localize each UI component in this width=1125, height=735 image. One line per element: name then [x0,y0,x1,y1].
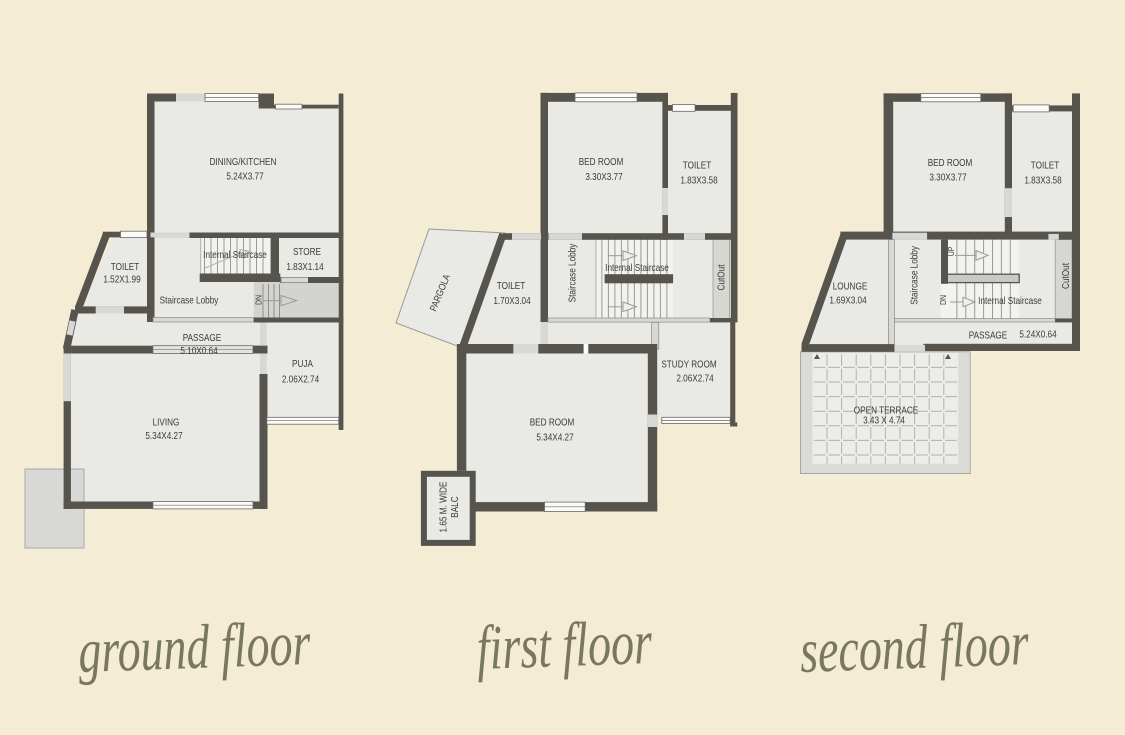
svg-text:TOILET: TOILET [111,261,140,272]
svg-text:TOILET: TOILET [1031,160,1060,171]
svg-text:Internal Staircase: Internal Staircase [203,249,267,260]
svg-text:TOILET: TOILET [497,280,526,291]
svg-text:second floor: second floor [799,608,1030,686]
svg-text:5.34X4.27: 5.34X4.27 [536,432,573,443]
svg-text:STUDY ROOM: STUDY ROOM [661,359,716,370]
svg-text:DINING/KITCHEN: DINING/KITCHEN [210,156,277,167]
svg-text:5.10X0.64: 5.10X0.64 [180,345,217,356]
svg-text:3.30X3.77: 3.30X3.77 [929,172,966,183]
svg-text:first floor: first floor [476,607,654,683]
svg-text:LOUNGE: LOUNGE [833,281,868,292]
svg-text:1.83X1.14: 1.83X1.14 [286,261,323,272]
svg-text:Internal Staircase: Internal Staircase [605,262,669,273]
svg-text:2.06X2.74: 2.06X2.74 [282,374,319,385]
svg-text:1.69X3.04: 1.69X3.04 [829,295,866,306]
svg-text:PASSAGE: PASSAGE [969,330,1008,341]
svg-text:1.70X3.04: 1.70X3.04 [493,295,530,306]
svg-text:Internal Staircase: Internal Staircase [978,295,1042,306]
svg-text:3.30X3.77: 3.30X3.77 [585,171,622,182]
svg-text:PUJA: PUJA [292,358,314,369]
svg-text:3.43 X 4.74: 3.43 X 4.74 [863,415,905,426]
svg-text:PASSAGE: PASSAGE [183,332,222,343]
svg-text:BED ROOM: BED ROOM [928,157,973,168]
svg-text:BED ROOM: BED ROOM [579,156,624,167]
svg-text:UP: UP [946,247,956,257]
svg-text:1.83X3.58: 1.83X3.58 [680,175,717,186]
svg-text:Staircase Lobby: Staircase Lobby [160,295,219,306]
svg-text:CutOut: CutOut [1060,263,1071,289]
svg-text:1.83X3.58: 1.83X3.58 [1024,175,1061,186]
svg-text:5.24X0.64: 5.24X0.64 [1019,329,1056,340]
svg-text:DN: DN [254,295,264,305]
svg-text:LIVING: LIVING [153,417,180,428]
svg-text:BED ROOM: BED ROOM [530,417,575,428]
svg-text:1.65 M. WIDE: 1.65 M. WIDE [438,482,449,533]
svg-text:Staircase Lobby: Staircase Lobby [909,246,920,305]
svg-text:2.06X2.74: 2.06X2.74 [676,373,713,384]
svg-text:DN: DN [938,295,948,305]
svg-text:1.52X1.99: 1.52X1.99 [103,274,140,285]
svg-text:BALC: BALC [449,496,460,518]
svg-text:5.24X3.77: 5.24X3.77 [226,171,263,182]
svg-text:TOILET: TOILET [683,160,712,171]
svg-text:Staircase Lobby: Staircase Lobby [567,243,578,302]
svg-text:CutOut: CutOut [716,264,727,290]
svg-text:ground floor: ground floor [77,608,312,686]
svg-text:5.34X4.27: 5.34X4.27 [145,430,182,441]
svg-text:STORE: STORE [293,246,321,257]
